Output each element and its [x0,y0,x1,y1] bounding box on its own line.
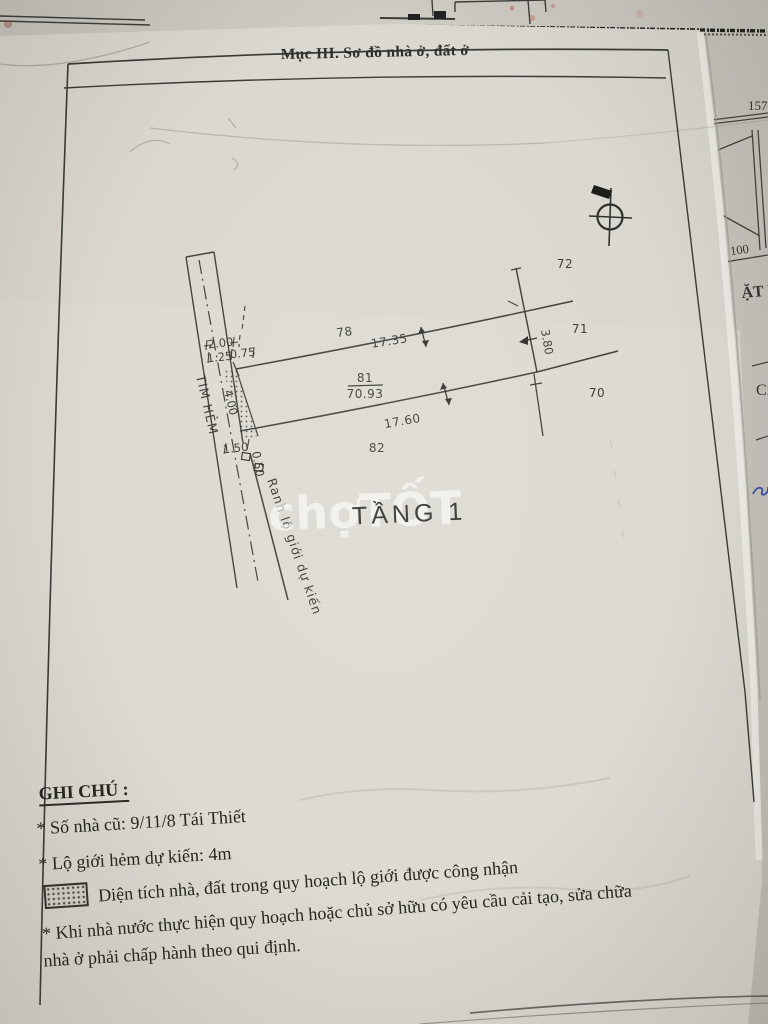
dim-1-50: 1.50 [222,440,249,457]
blue-pen-squiggle [753,487,768,495]
adjacent-sheet-fragment-matbang: ẶT BẰ [741,279,768,302]
parcel-81-area: 70.93 [347,387,384,401]
notes-heading: GHI CHÚ : [38,779,129,805]
parcel-72-label: 72 [557,257,573,271]
adjacent-sheet-number-157: 157 [748,98,768,113]
dim-0-75: 0.75 [229,345,256,362]
floor-label: TẦNG 1 [351,498,466,532]
parcel-82-label: 82 [369,441,385,455]
parcel-78-label: 78 [336,324,354,340]
parcel-81-number: 81 [357,371,373,385]
adjacent-sheet-number-100: 100 [729,242,750,258]
parcel-70-label: 70 [589,386,605,400]
hatch-swatch [43,882,89,909]
scanned-survey-photo: 157 100 ẶT BẰ Cị [0,0,768,1024]
note-alley-width: * Lộ giới hẻm dự kiến: 4m [38,843,232,875]
adjacent-sheet-fragment-ci: Cị [756,382,768,399]
notes-block: GHI CHÚ : * Số nhà cũ: 9/11/8 Tái Thiết … [30,743,754,990]
notes-heading-text: GHI CHÚ : [38,779,129,807]
parcel-71-label: 71 [572,322,588,336]
note-old-address: * Số nhà cũ: 9/11/8 Tái Thiết [36,806,247,839]
